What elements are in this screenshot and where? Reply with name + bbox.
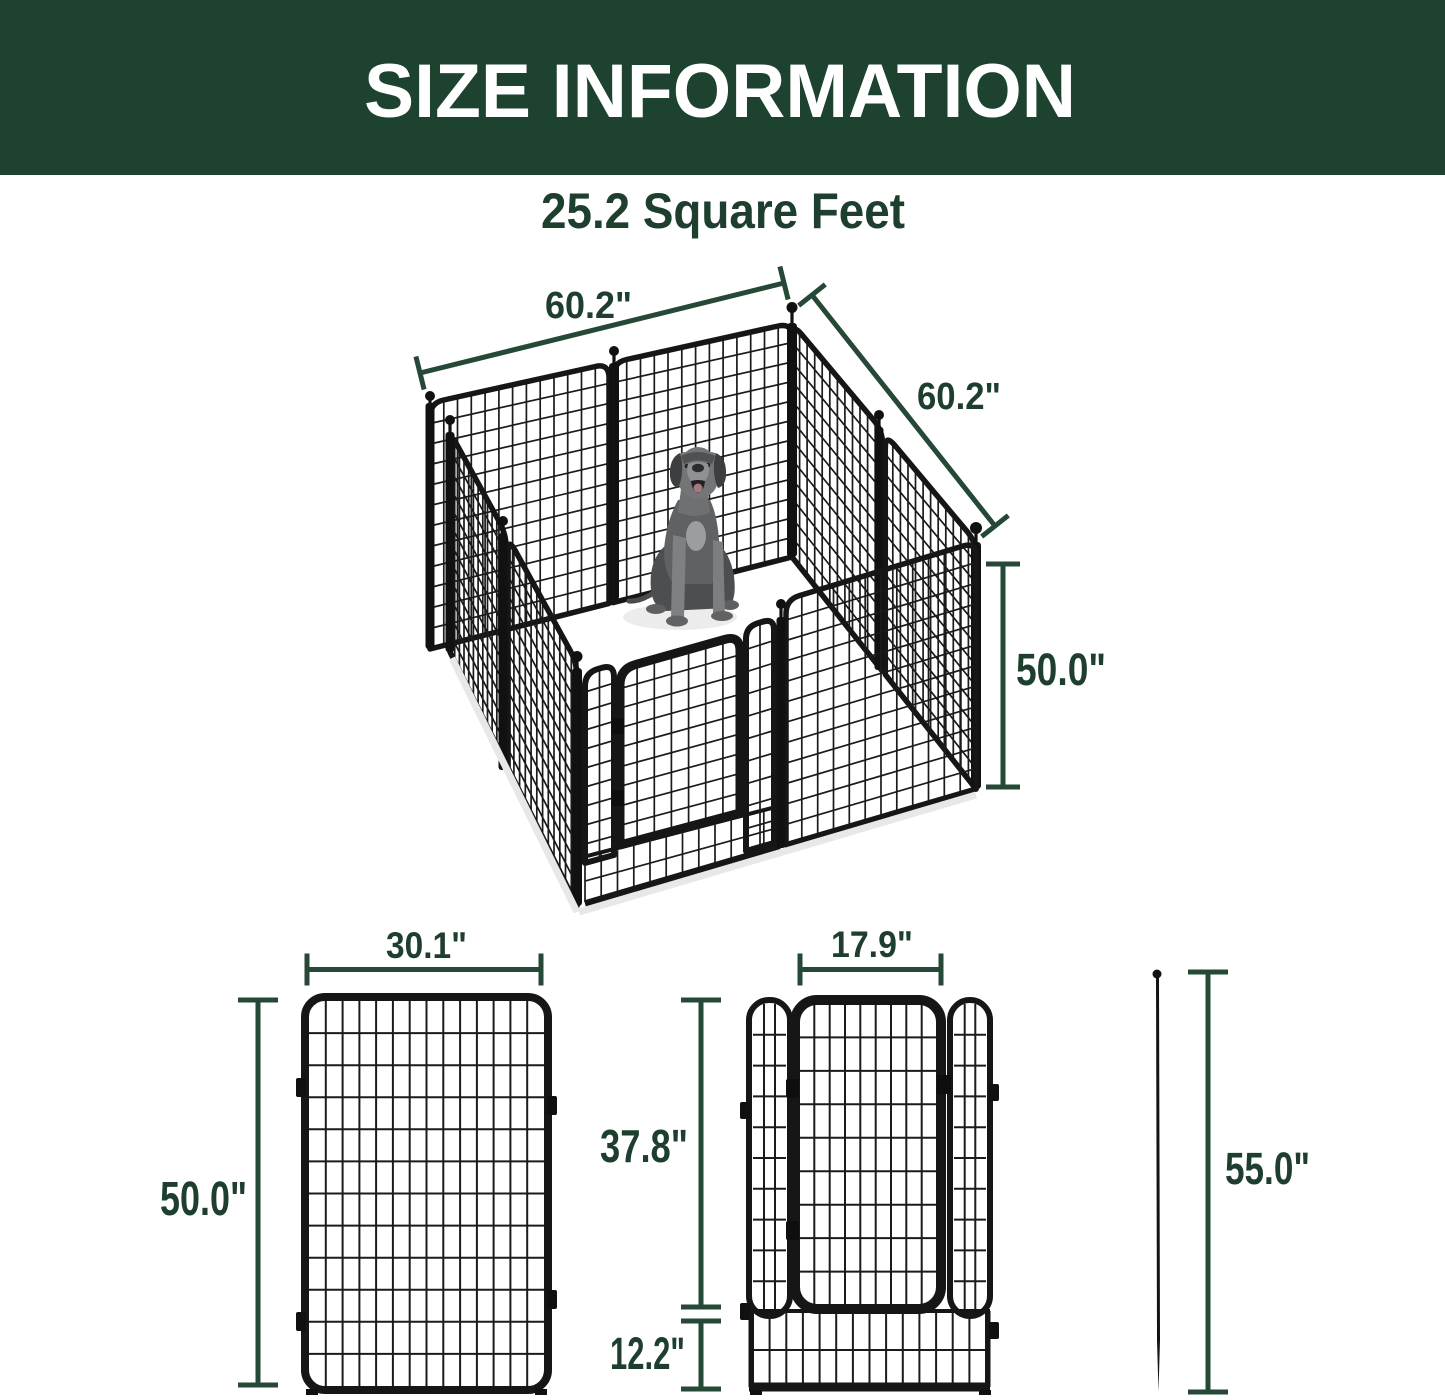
svg-text:30.1": 30.1" (386, 925, 467, 966)
svg-text:25.2 Square Feet: 25.2 Square Feet (541, 183, 905, 239)
svg-text:12.2": 12.2" (610, 1328, 685, 1379)
svg-text:60.2": 60.2" (545, 285, 632, 327)
svg-text:37.8": 37.8" (600, 1120, 688, 1172)
svg-text:17.9": 17.9" (831, 924, 913, 965)
svg-text:50.0": 50.0" (1016, 644, 1106, 695)
svg-text:60.2": 60.2" (917, 376, 1001, 418)
svg-text:50.0": 50.0" (160, 1173, 247, 1226)
svg-text:SIZE INFORMATION: SIZE INFORMATION (364, 49, 1076, 134)
svg-text:55.0": 55.0" (1225, 1143, 1310, 1194)
